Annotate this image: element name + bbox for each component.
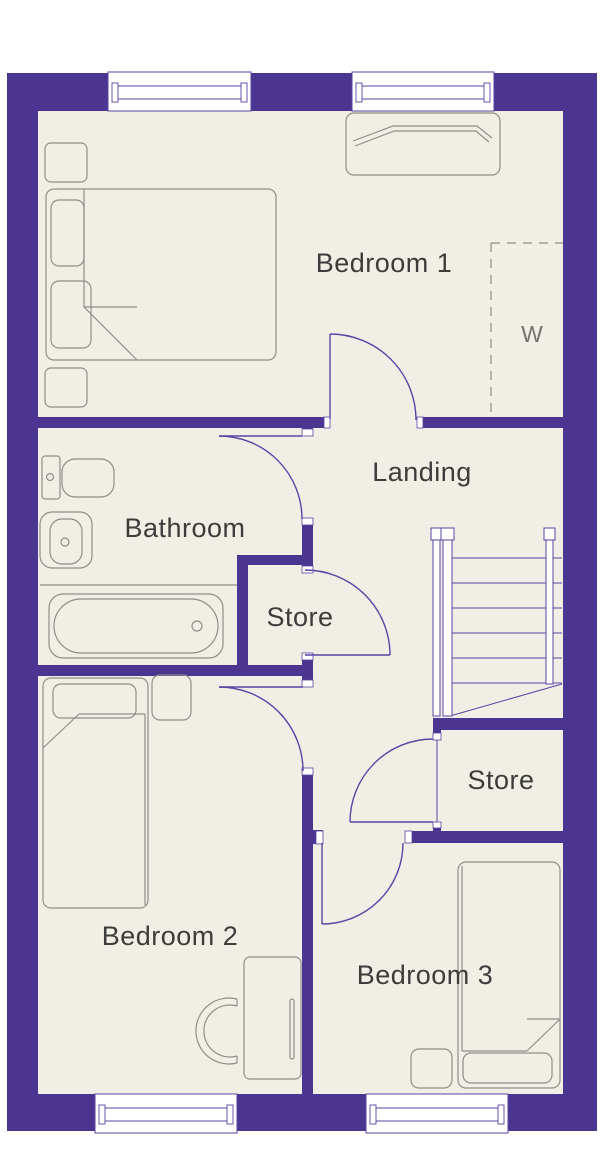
stair-rail-left-inner (443, 540, 452, 716)
stair-rail-left-outer (433, 540, 440, 716)
stair-newel-post (544, 528, 555, 540)
window-top-2 (352, 72, 494, 111)
room-label-store-lower: Store (467, 765, 534, 795)
room-label-landing: Landing (372, 457, 472, 487)
floor-plan: Bedroom 1 W Landing Bathroom Store Store… (0, 0, 602, 1155)
room-label-bathroom: Bathroom (124, 513, 245, 543)
room-label-bedroom2: Bedroom 2 (102, 921, 239, 951)
stair-newel-post (441, 528, 454, 540)
stair-rail-right (546, 540, 553, 684)
room-label-bedroom1: Bedroom 1 (316, 248, 453, 278)
floor-plan-page: Bedroom 1 W Landing Bathroom Store Store… (0, 0, 602, 1155)
room-label-store-middle: Store (266, 602, 333, 632)
room-label-wardrobe: W (521, 321, 543, 347)
window-bottom-1 (95, 1094, 237, 1133)
window-bottom-2 (366, 1094, 508, 1133)
stair-newel-post (431, 528, 442, 540)
room-label-bedroom3: Bedroom 3 (357, 960, 494, 990)
window-top-1 (108, 72, 251, 111)
